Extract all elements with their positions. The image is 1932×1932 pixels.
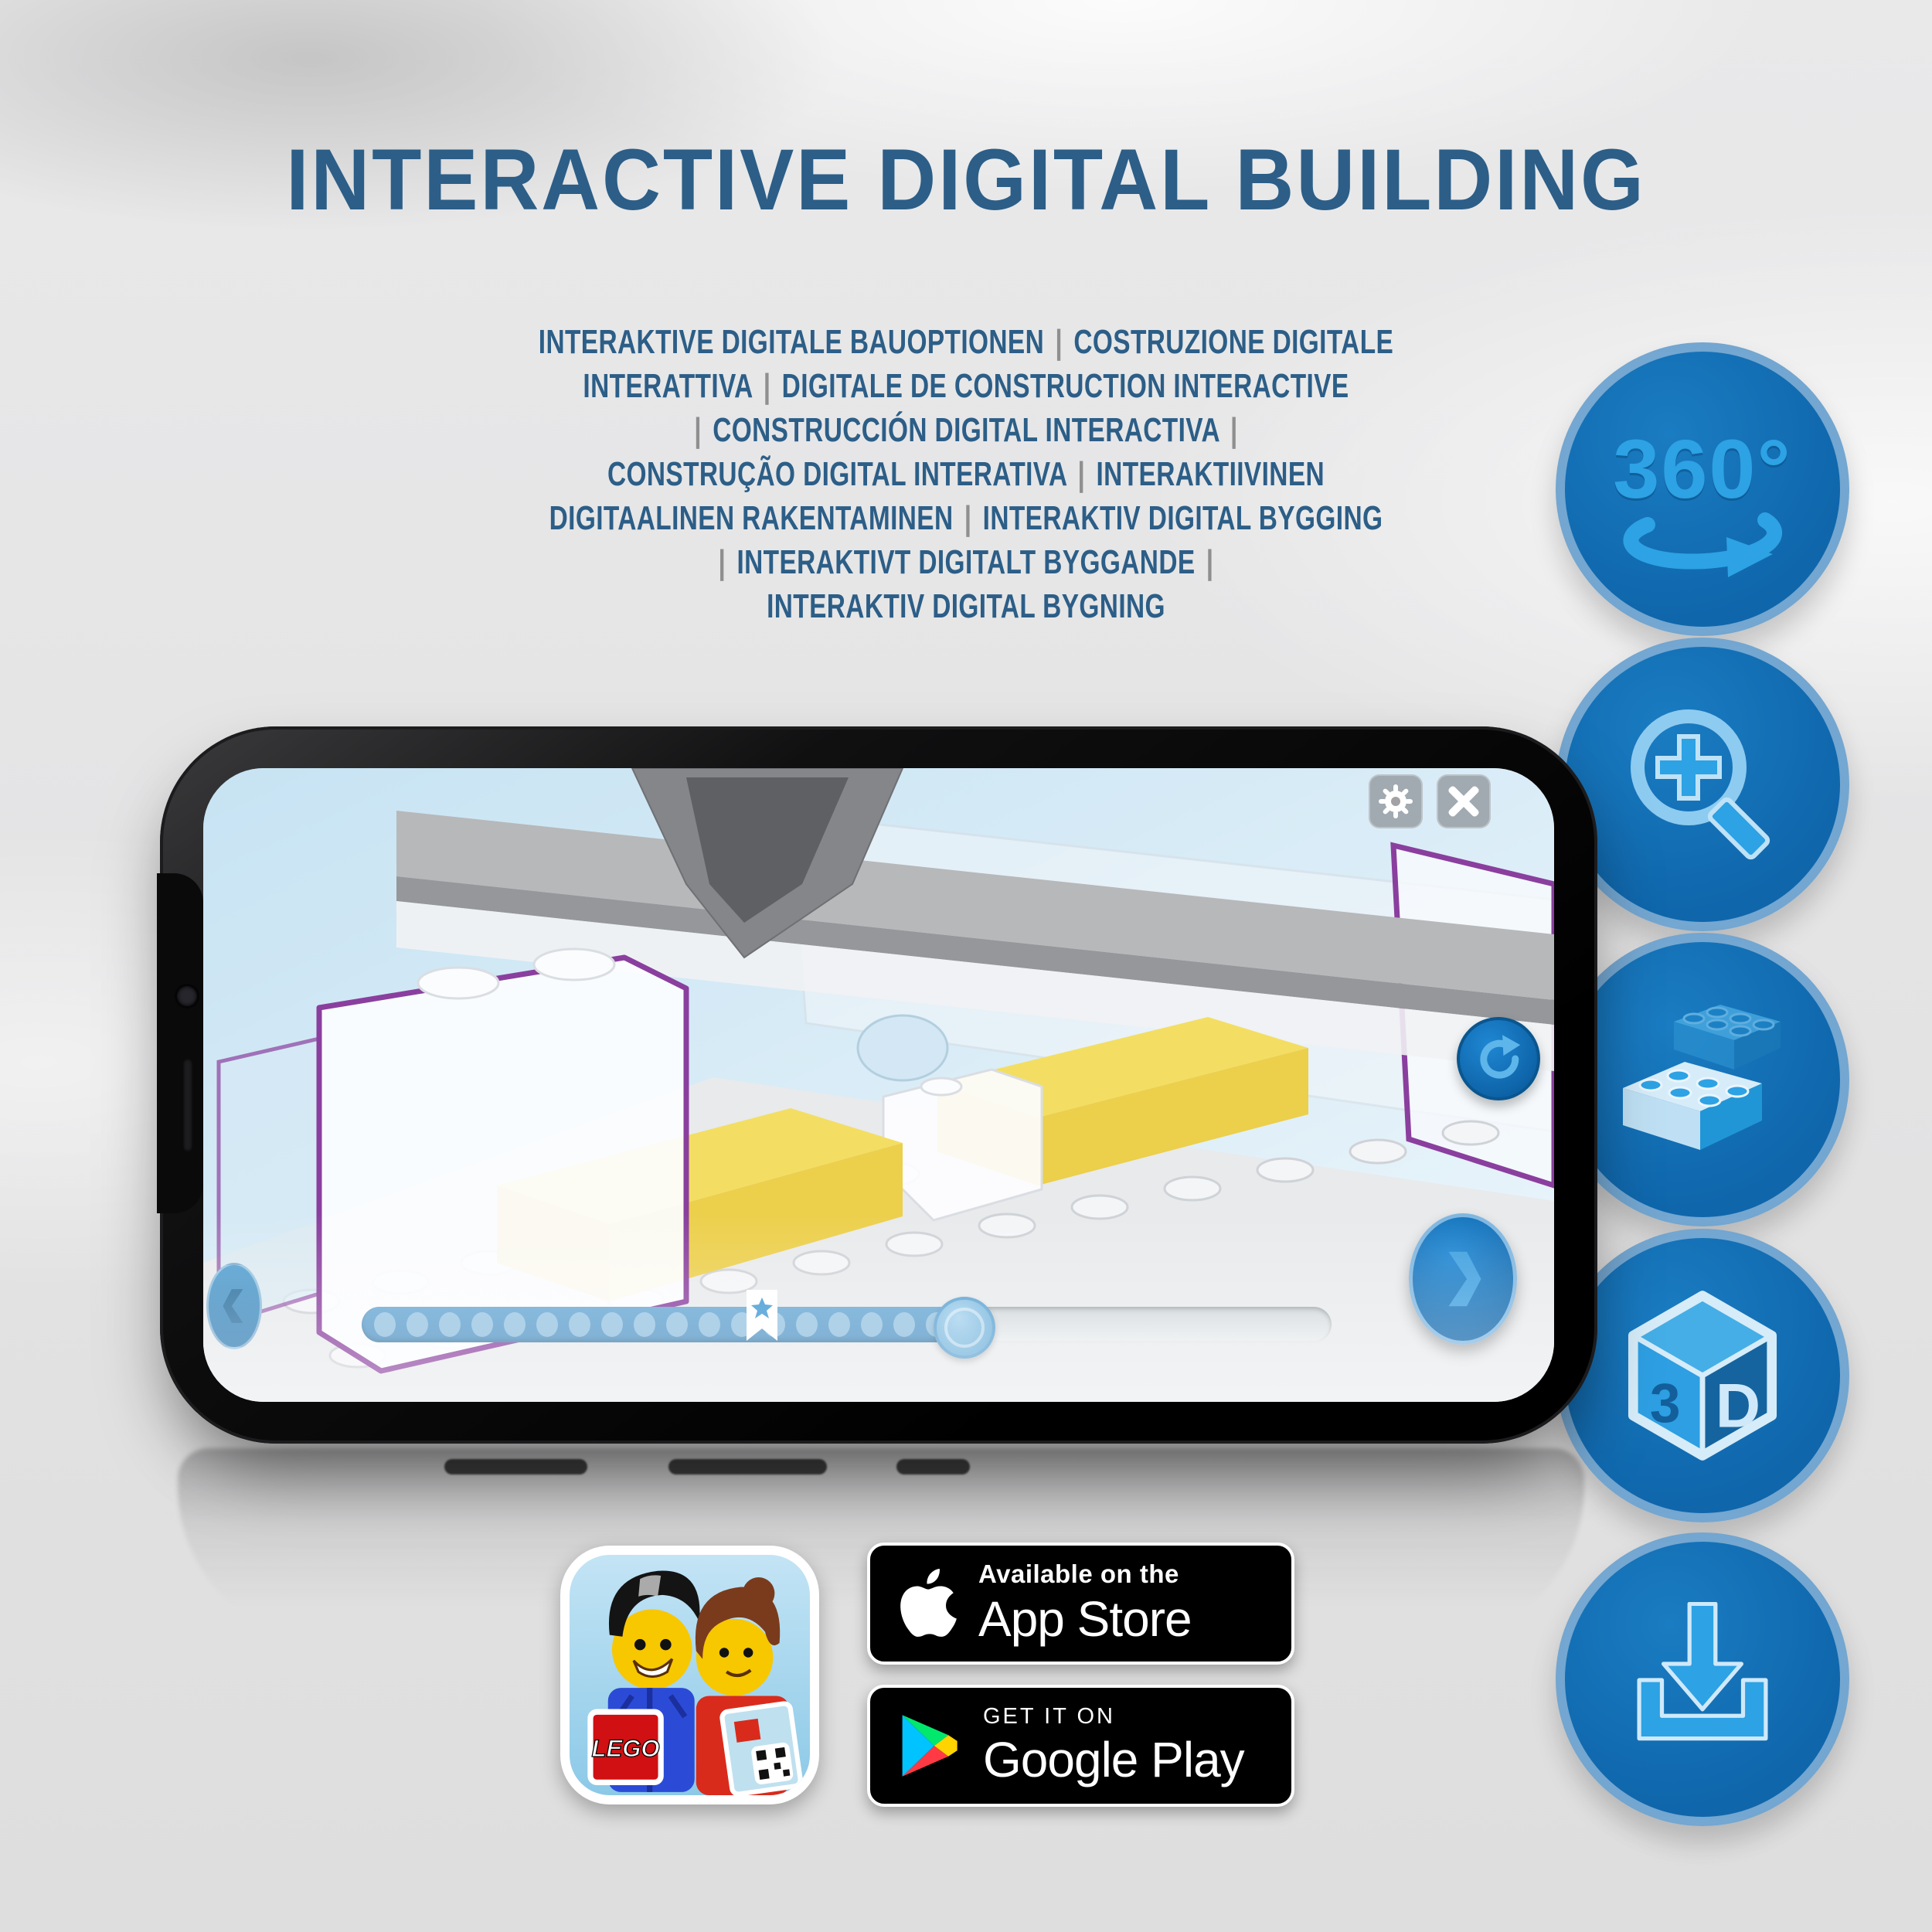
feature-download <box>1556 1532 1849 1826</box>
feature-3d-view: 3 D <box>1556 1229 1849 1522</box>
lego-logo-text: LEGO <box>592 1735 660 1762</box>
chevron-left-icon <box>221 1286 247 1326</box>
slider-dot <box>861 1312 883 1337</box>
speaker-slot <box>183 1059 192 1151</box>
phone-notch <box>157 873 203 1213</box>
slider-dot <box>504 1312 526 1337</box>
reflected-button <box>444 1459 587 1475</box>
google-play-icon <box>896 1709 961 1782</box>
page-title: INTERACTIVE DIGITAL BUILDING <box>58 130 1874 230</box>
separator: | <box>1226 411 1241 449</box>
gear-icon <box>1379 784 1413 818</box>
rotate-arrow-icon <box>1474 1034 1523 1083</box>
slider-dot <box>828 1312 850 1337</box>
close-button[interactable] <box>1437 774 1491 828</box>
slider-dot <box>666 1312 688 1337</box>
3d-cube-icon: 3 D <box>1614 1287 1791 1464</box>
apple-icon <box>896 1568 957 1639</box>
separator: | <box>961 499 975 537</box>
slider-dot <box>406 1312 428 1337</box>
front-camera <box>177 986 197 1006</box>
slider-dot <box>374 1312 396 1337</box>
slider-dot <box>893 1312 915 1337</box>
google-play-name: Google Play <box>983 1731 1244 1788</box>
phone-mockup <box>160 726 1597 1444</box>
slider-dot <box>439 1312 461 1337</box>
reflected-button <box>896 1459 970 1475</box>
app-store-name: App Store <box>978 1590 1192 1648</box>
separator: | <box>1202 543 1217 581</box>
separator: | <box>1074 455 1089 493</box>
cube-d-label: D <box>1716 1372 1760 1441</box>
app-store-tagline: Available on the <box>978 1560 1192 1589</box>
separator: | <box>715 543 730 581</box>
subtitle-line: INTERAKTIVE DIGITALE BAUOPTIONEN | COSTR… <box>232 320 1700 364</box>
subtitle-line: DIGITAALINEN RAKENTAMINEN | INTERAKTIV D… <box>232 496 1700 540</box>
star-icon <box>750 1297 774 1320</box>
subtitle-line: CONSTRUÇÃO DIGITAL INTERATIVA | INTERAKT… <box>232 452 1700 496</box>
reset-rotation-button[interactable] <box>1457 1017 1540 1100</box>
settings-button[interactable] <box>1369 774 1423 828</box>
rotation-arrow-icon <box>1614 506 1791 580</box>
slider-dots <box>374 1312 947 1337</box>
lego-bricks-icon <box>1614 998 1791 1161</box>
download-icon <box>1621 1602 1784 1757</box>
next-step-button[interactable] <box>1409 1213 1517 1345</box>
reflected-button <box>668 1459 827 1475</box>
slider-dot <box>536 1312 558 1337</box>
subtitle-line: INTERATTIVA | DIGITALE DE CONSTRUCTION I… <box>232 364 1700 408</box>
app-store-badge[interactable]: Available on the App Store <box>867 1543 1294 1665</box>
lego-logo: LEGO <box>590 1712 661 1782</box>
feature-zoom <box>1556 638 1849 931</box>
slider-dot <box>471 1312 493 1337</box>
lego-app-icon[interactable]: LEGO <box>560 1546 819 1804</box>
slider-dot <box>699 1312 720 1337</box>
subtitle-line: | CONSTRUCCIÓN DIGITAL INTERACTIVA | <box>232 408 1700 452</box>
feature-bricks <box>1556 933 1849 1226</box>
slider-dot <box>601 1312 623 1337</box>
previous-step-button[interactable] <box>206 1263 262 1349</box>
subtitle-line: | INTERAKTIVT DIGITALT BYGGANDE | <box>232 540 1700 584</box>
slider-dot <box>634 1312 655 1337</box>
slider-handle[interactable] <box>934 1297 995 1359</box>
zoom-in-icon <box>1617 699 1787 869</box>
separator: | <box>760 367 774 405</box>
build-progress-slider[interactable] <box>362 1307 1332 1342</box>
cube-3-label: 3 <box>1650 1372 1681 1434</box>
close-icon <box>1447 785 1480 818</box>
feature-360-rotation: 360° <box>1556 342 1849 636</box>
360-degrees-icon: 360° <box>1613 420 1791 517</box>
separator: | <box>1052 323 1066 361</box>
google-play-badge[interactable]: GET IT ON Google Play <box>867 1685 1294 1807</box>
subtitle-line: INTERAKTIV DIGITAL BYGNING <box>232 584 1700 628</box>
app-screen <box>203 768 1554 1402</box>
separator: | <box>691 411 706 449</box>
google-play-tagline: GET IT ON <box>983 1704 1244 1730</box>
promo-graphic: INTERACTIVE DIGITAL BUILDING INTERAKTIVE… <box>0 0 1932 1932</box>
chevron-right-icon <box>1441 1247 1485 1311</box>
slider-dot <box>569 1312 590 1337</box>
slider-dot <box>796 1312 818 1337</box>
